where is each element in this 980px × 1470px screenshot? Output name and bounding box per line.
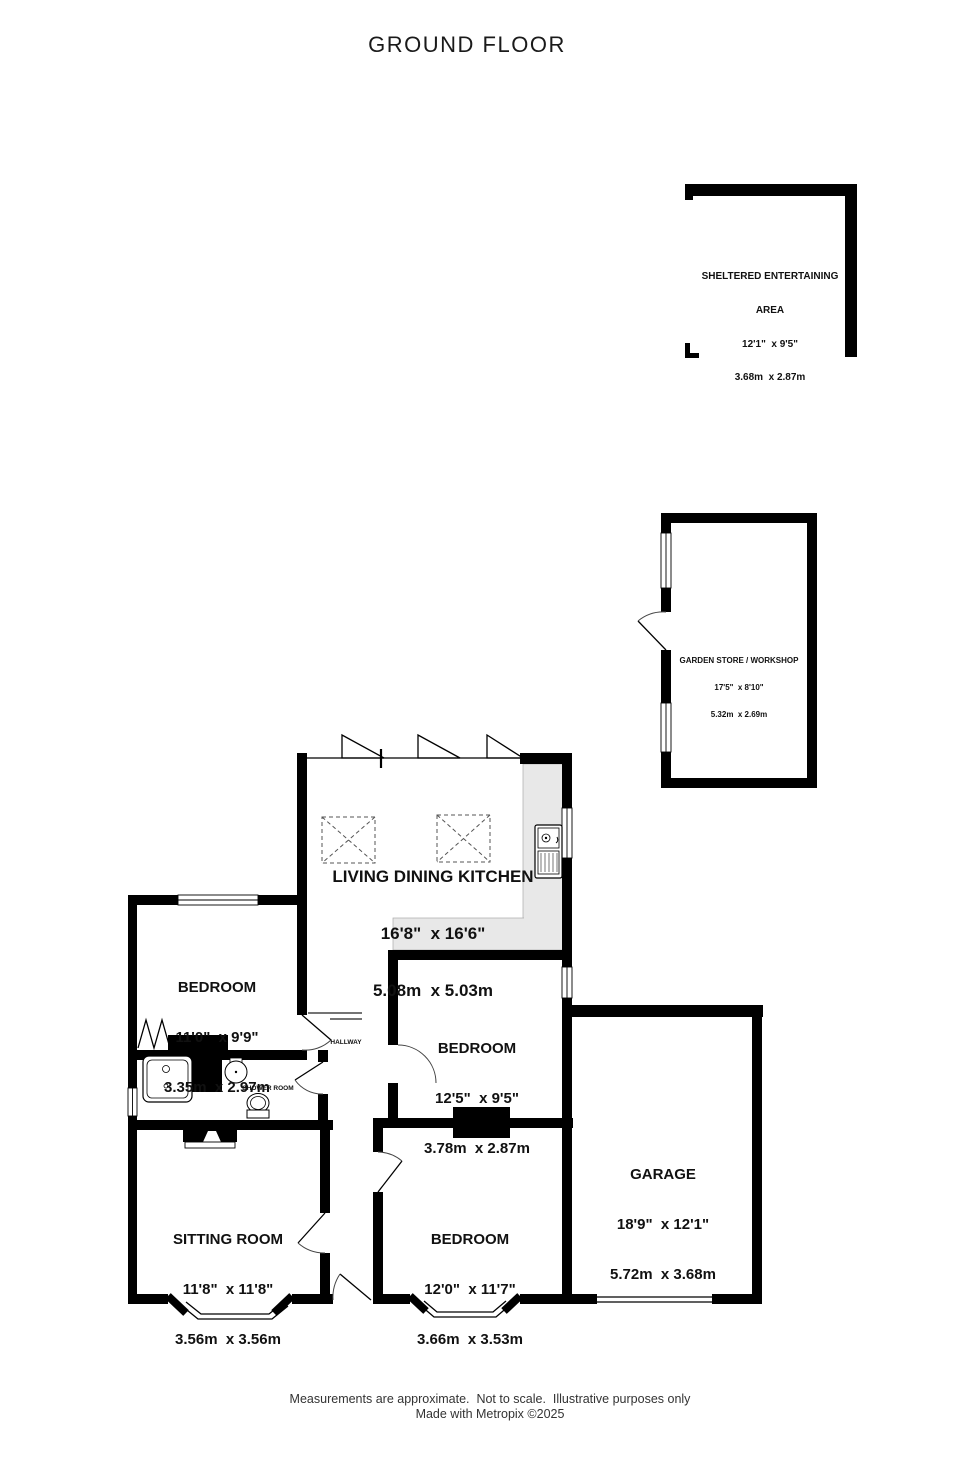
window-shower-left bbox=[128, 1088, 137, 1116]
room-dims-metric: 5.72m x 3.68m bbox=[610, 1267, 716, 1284]
room-label-shower-room: SHOWER ROOM bbox=[242, 1085, 293, 1092]
window-gardenstore-upper bbox=[661, 533, 671, 588]
room-dims-imperial: 12'5" x 9'5" bbox=[424, 1091, 530, 1108]
room-dims-metric: 3.68m x 2.87m bbox=[702, 372, 839, 383]
door-gardenstore bbox=[638, 612, 666, 650]
room-dims-metric: 5.32m x 2.69m bbox=[680, 711, 799, 720]
room-dims-metric: 5.08m x 5.03m bbox=[332, 981, 533, 1000]
kitchen-sink bbox=[535, 825, 562, 878]
room-label-kitchen: LIVING DINING KITCHEN 16'8" x 16'6" 5.08… bbox=[332, 829, 533, 1019]
window-bedroom-left-top bbox=[178, 895, 258, 905]
room-dims-imperial: 18'9" x 12'1" bbox=[610, 1217, 716, 1234]
room-label-hallway: HALLWAY bbox=[330, 1039, 361, 1046]
room-label-sheltered-area: SHELTERED ENTERTAINING AREA 12'1" x 9'5"… bbox=[702, 249, 839, 394]
credit-text: Made with Metropix ©2025 bbox=[416, 1407, 565, 1422]
room-dims-imperial: 16'8" x 16'6" bbox=[332, 924, 533, 943]
room-name-2: AREA bbox=[702, 305, 839, 316]
floorplan-page: GROUND FLOOR SHELTERED ENTERTAINING AREA… bbox=[0, 0, 980, 1470]
door-front-entrance bbox=[333, 1274, 371, 1300]
kitchen-bifold-doors bbox=[307, 735, 523, 768]
fireplace bbox=[183, 1127, 237, 1148]
door-bedroom-left bbox=[302, 1015, 331, 1050]
disclaimer-text: Measurements are approximate. Not to sca… bbox=[290, 1392, 691, 1407]
door-shower-room bbox=[295, 1062, 323, 1094]
room-dims-metric: 3.66m x 3.53m bbox=[417, 1332, 523, 1349]
room-label-garage: GARAGE 18'9" x 12'1" 5.72m x 3.68m bbox=[610, 1133, 716, 1301]
page-title: GROUND FLOOR bbox=[368, 32, 566, 58]
window-bedroom-middle-right bbox=[562, 967, 572, 998]
window-kitchen-right bbox=[562, 808, 572, 858]
room-name: BEDROOM bbox=[417, 1232, 523, 1249]
room-name: GARAGE bbox=[610, 1167, 716, 1184]
room-name: GARDEN STORE / WORKSHOP bbox=[680, 657, 799, 666]
room-dims-imperial: 11'8" x 11'8" bbox=[173, 1282, 283, 1299]
room-name: BEDROOM bbox=[164, 980, 270, 997]
room-label-bedroom-middle: BEDROOM 12'5" x 9'5" 3.78m x 2.87m bbox=[424, 1007, 530, 1175]
room-dims-metric: 3.78m x 2.87m bbox=[424, 1141, 530, 1158]
room-label-garden-store: GARDEN STORE / WORKSHOP 17'5" x 8'10" 5.… bbox=[680, 639, 799, 729]
room-dims-imperial: 17'5" x 8'10" bbox=[680, 684, 799, 693]
window-gardenstore-lower bbox=[661, 703, 671, 752]
room-label-bedroom-bottom: BEDROOM 12'0" x 11'7" 3.66m x 3.53m bbox=[417, 1198, 523, 1366]
room-dims-imperial: 11'0" x 9'9" bbox=[164, 1030, 270, 1047]
room-dims-imperial: 12'0" x 11'7" bbox=[417, 1282, 523, 1299]
room-name: SITTING ROOM bbox=[173, 1232, 283, 1249]
room-label-sitting-room: SITTING ROOM 11'8" x 11'8" 3.56m x 3.56m bbox=[173, 1198, 283, 1366]
room-dims-metric: 3.56m x 3.56m bbox=[173, 1332, 283, 1349]
door-bedroom-bottom bbox=[378, 1152, 402, 1192]
room-name: LIVING DINING KITCHEN bbox=[332, 867, 533, 886]
room-name: BEDROOM bbox=[424, 1041, 530, 1058]
door-sitting-room bbox=[298, 1213, 325, 1253]
room-dims-imperial: 12'1" x 9'5" bbox=[702, 339, 839, 350]
room-name: SHELTERED ENTERTAINING bbox=[702, 271, 839, 282]
